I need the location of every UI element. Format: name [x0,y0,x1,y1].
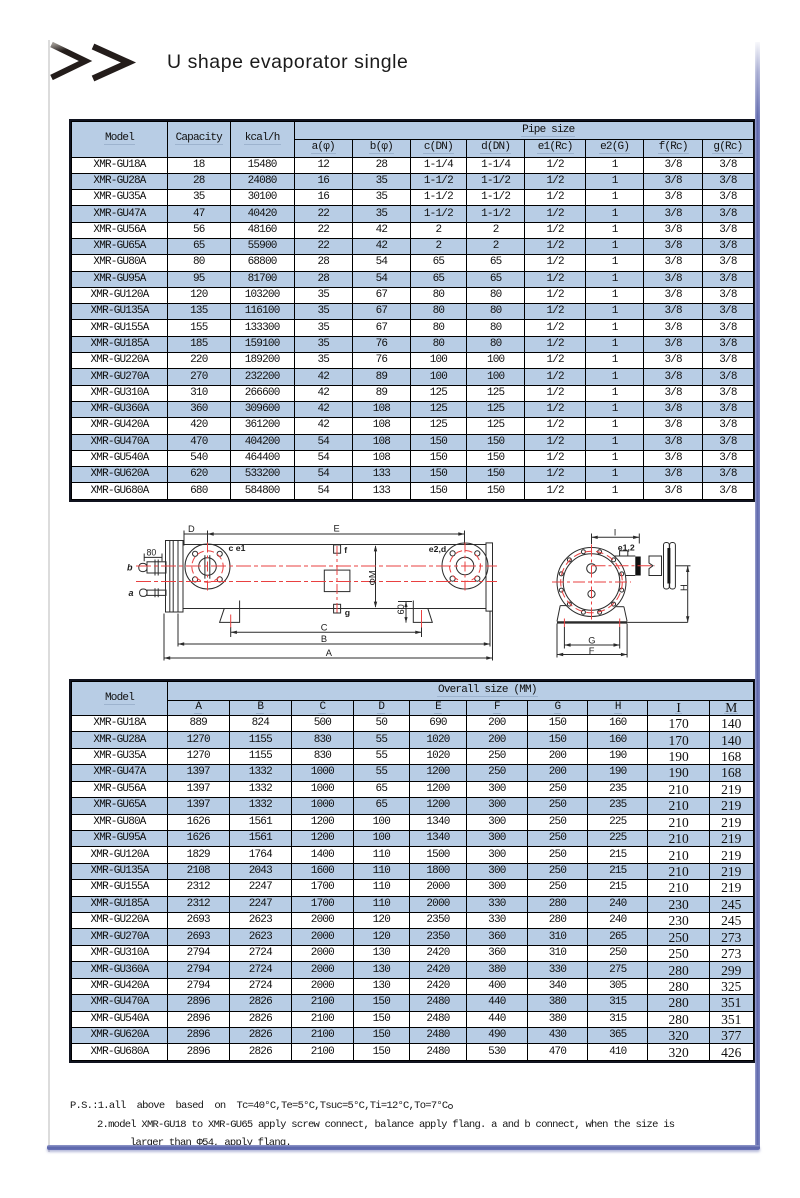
svg-text:E: E [334,524,340,534]
svg-text:I: I [614,527,617,537]
svg-text:b: b [127,563,133,573]
svg-text:B: B [321,634,327,644]
svg-text:D: D [188,524,195,534]
svg-text:a: a [129,588,134,598]
svg-text:80: 80 [147,547,157,557]
svg-text:A: A [326,648,333,658]
svg-text:g: g [345,608,350,618]
svg-text:G: G [588,635,595,645]
svg-text:c e1: c e1 [229,543,246,553]
svg-text:f: f [344,545,347,555]
svg-text:e2,d: e2,d [429,544,446,554]
svg-text:60: 60 [396,604,406,614]
svg-text:C: C [321,622,328,632]
svg-text:H: H [679,584,689,591]
svg-text:F: F [589,646,595,656]
svg-text:e1,2: e1,2 [618,542,635,552]
svg-text:ΦM: ΦM [368,570,378,585]
